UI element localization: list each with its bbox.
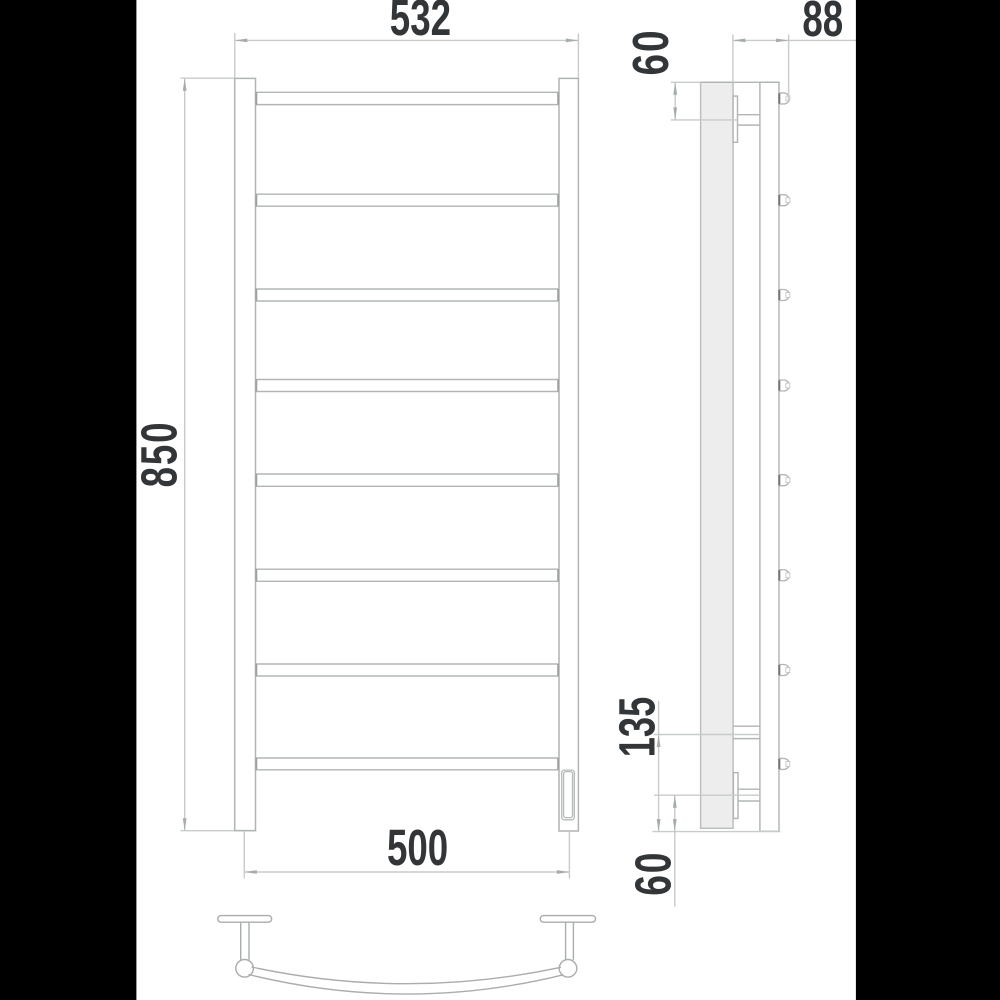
svg-text:60: 60: [626, 851, 682, 896]
svg-text:532: 532: [390, 0, 451, 47]
svg-text:60: 60: [622, 29, 679, 76]
svg-text:135: 135: [610, 697, 667, 757]
svg-text:850: 850: [132, 421, 188, 488]
svg-text:500: 500: [387, 820, 448, 876]
svg-text:88: 88: [802, 0, 843, 48]
